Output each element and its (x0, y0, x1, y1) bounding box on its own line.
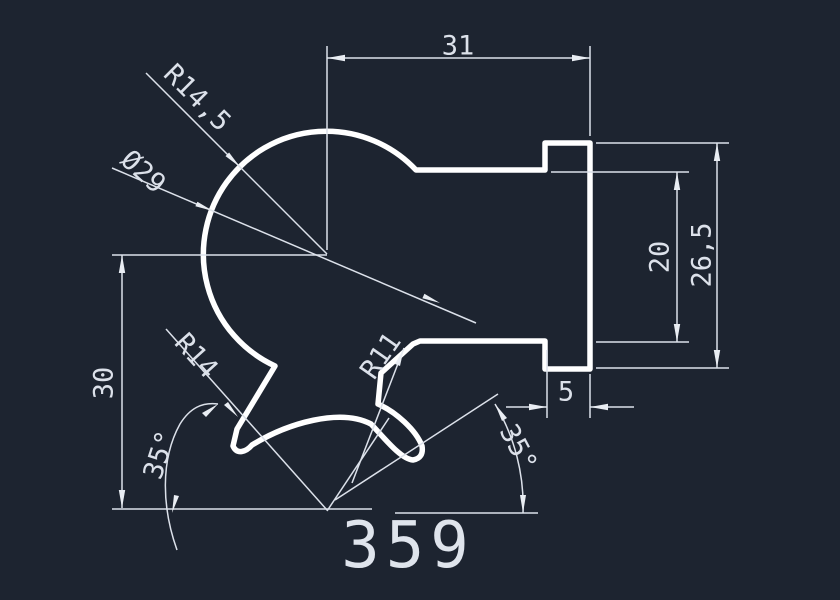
angle-arc-left (165, 404, 218, 550)
part-outline (203, 131, 590, 460)
dim-text-main-radius: R14,5 (157, 58, 236, 137)
arrow-265-top (714, 143, 720, 161)
dim-text-right-fillet: R11 (354, 327, 407, 385)
cad-model-space[interactable]: 31 20 26,5 5 30 R14,5 Ø29 R14 R11 35° 35… (0, 0, 840, 600)
arrow-20-top (674, 172, 680, 190)
dim-text-angle-right: 35° (493, 419, 543, 477)
arrow-30-bottom (119, 490, 125, 508)
dim-text-top-width: 31 (442, 31, 475, 62)
dim-text-bore-diameter: Ø29 (115, 144, 172, 200)
arrow-5-left (529, 404, 547, 410)
arrow-angle-right-top (495, 404, 507, 421)
leader-d29 (112, 168, 476, 323)
angle-ref-line-vertex (327, 418, 389, 511)
arrow-angle-left-bottom (172, 495, 179, 513)
dim-text-left-height: 30 (89, 367, 120, 400)
dim-text-outer-height: 26,5 (687, 222, 718, 287)
drawing-canvas[interactable]: 31 20 26,5 5 30 R14,5 Ø29 R14 R11 35° 35… (0, 0, 840, 600)
dim-text-inner-height: 20 (645, 241, 676, 274)
arrow-265-bottom (714, 350, 720, 368)
dim-text-left-fillet: R14 (168, 328, 224, 385)
arrow-5-right (590, 404, 608, 410)
angle-ref-line-right (335, 394, 498, 500)
arrow-30-top (119, 255, 125, 273)
arrow-20-bottom (674, 324, 680, 342)
dimension-texts: 31 20 26,5 5 30 R14,5 Ø29 R14 R11 35° 35… (89, 31, 718, 584)
dim-text-tab-width: 5 (558, 377, 574, 408)
part-number-text: 359 (341, 509, 475, 583)
arrow-angle-right-bottom (520, 495, 526, 513)
dim-text-angle-left: 35° (138, 427, 183, 483)
arrow-31-right (572, 55, 590, 61)
arrow-angle-left-top (202, 404, 218, 417)
arrow-r14 (224, 402, 238, 417)
arrow-r145 (226, 153, 241, 168)
arrow-31-left (327, 55, 345, 61)
